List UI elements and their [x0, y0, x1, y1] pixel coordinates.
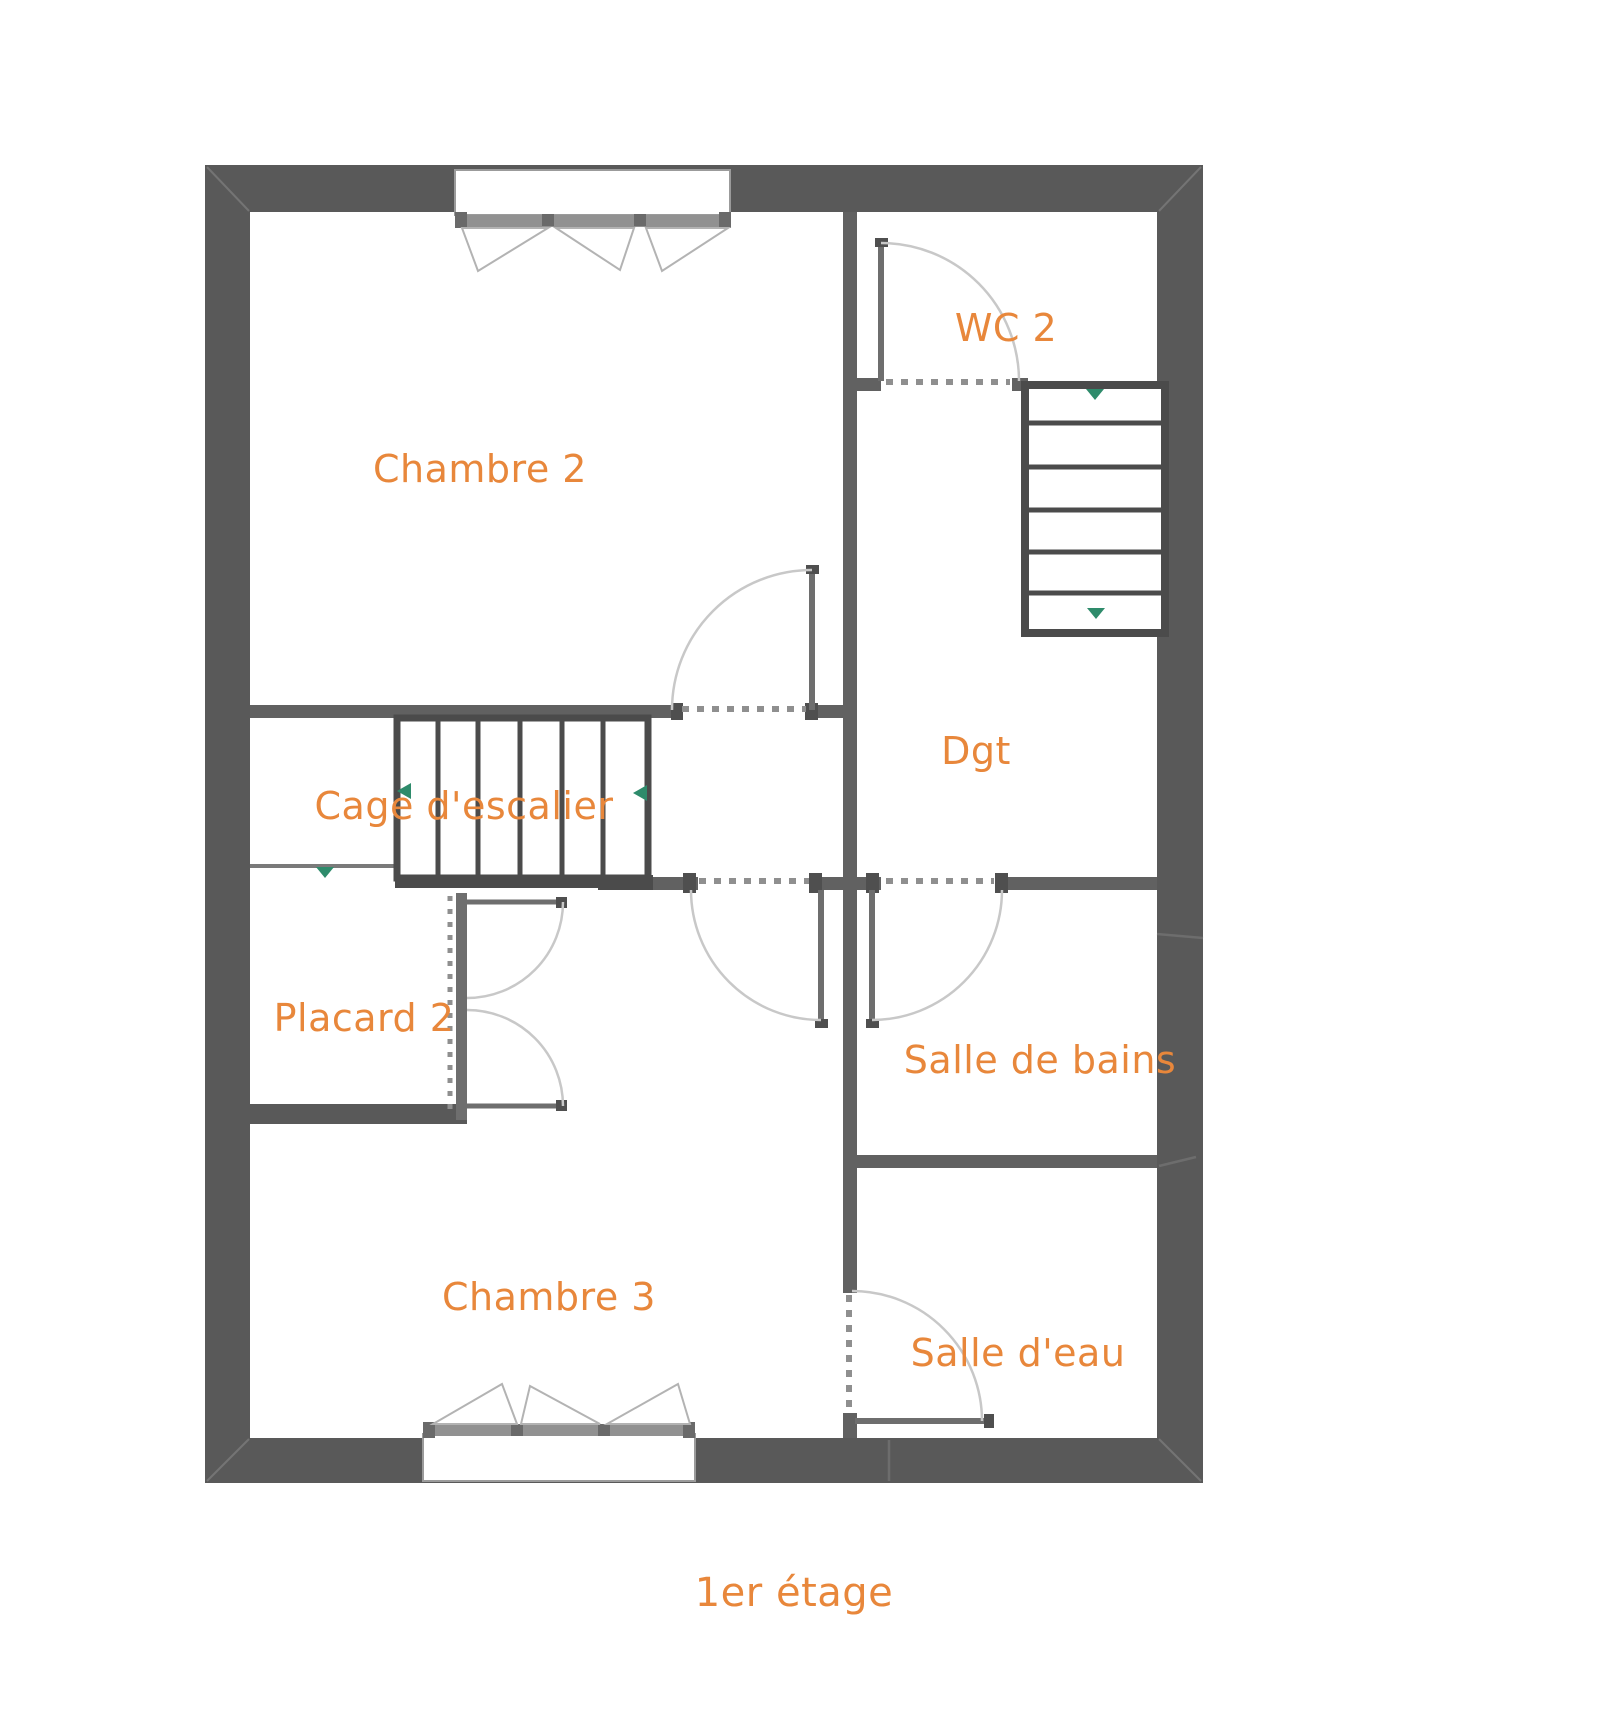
window-bottom-sill	[426, 1424, 692, 1436]
wall-west	[205, 165, 250, 1483]
room-label-salle-de-bains: Salle de bains	[904, 1041, 1176, 1079]
floor-caption: 1er étage	[695, 1573, 894, 1613]
door-chambre2	[672, 565, 819, 710]
door-chambre2-arc	[672, 570, 812, 710]
placard-double-doors	[467, 897, 567, 1111]
room-label-chambre-2: Chambre 2	[373, 450, 587, 488]
window-top-sill	[458, 215, 728, 227]
placard-frame-line	[456, 893, 467, 1120]
room-label-wc-2: WC 2	[955, 309, 1057, 347]
floor-plan: Chambre 2 WC 2 Dgt Cage d'escalier Placa…	[0, 0, 1600, 1730]
room-label-dgt: Dgt	[941, 732, 1011, 770]
wall-east	[1157, 165, 1203, 1483]
door-salle-de-bains	[866, 890, 1002, 1028]
wall-central-vertical	[843, 212, 857, 1293]
room-label-chambre-3: Chambre 3	[442, 1278, 656, 1316]
window-top	[455, 170, 731, 271]
door-salle-de-bains-arc	[872, 890, 1002, 1020]
staircase-upper	[1025, 385, 1165, 633]
arrow-icon	[316, 867, 334, 878]
wall-wc-south-left	[843, 378, 881, 391]
room-label-salle-d-eau: Salle d'eau	[911, 1334, 1126, 1372]
window-bottom-casement-triangles	[433, 1384, 690, 1424]
window-bottom	[423, 1384, 695, 1481]
thresholds	[450, 382, 1010, 1411]
window-top-frame	[455, 170, 730, 215]
room-label-cage-escalier: Cage d'escalier	[315, 787, 614, 825]
placard-door-bottom-arc	[467, 1010, 563, 1106]
floor-plan-drawing	[0, 0, 1600, 1730]
wall-central-vertical-lower	[843, 1413, 857, 1438]
room-label-placard-2: Placard 2	[274, 999, 455, 1037]
placard-door-top-arc	[467, 902, 563, 998]
staircase-cage-step-joint	[598, 878, 653, 890]
window-top-casement-triangles	[462, 228, 728, 271]
wall-placard-south	[250, 1104, 467, 1124]
door-chambre3-arc	[691, 890, 821, 1020]
wall-seams	[889, 934, 1203, 1481]
window-bottom-frame	[423, 1434, 695, 1481]
wall-sdb-sde-divider	[857, 1155, 1157, 1168]
wall-south	[205, 1438, 1203, 1483]
wall-landing-c	[998, 877, 1157, 890]
door-chambre3	[691, 890, 828, 1028]
